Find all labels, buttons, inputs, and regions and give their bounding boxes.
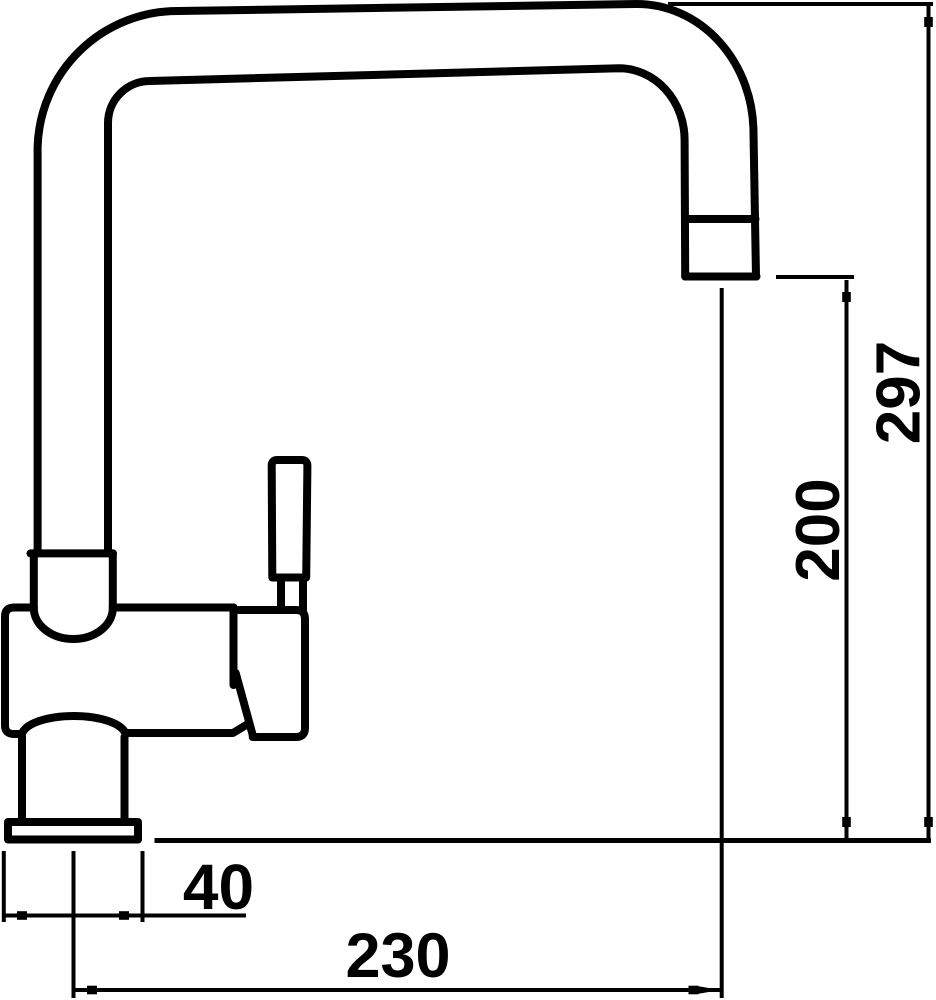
svg-text:200: 200 bbox=[784, 478, 853, 581]
svg-text:230: 230 bbox=[345, 921, 450, 991]
svg-text:40: 40 bbox=[183, 851, 254, 923]
svg-text:297: 297 bbox=[864, 341, 933, 444]
